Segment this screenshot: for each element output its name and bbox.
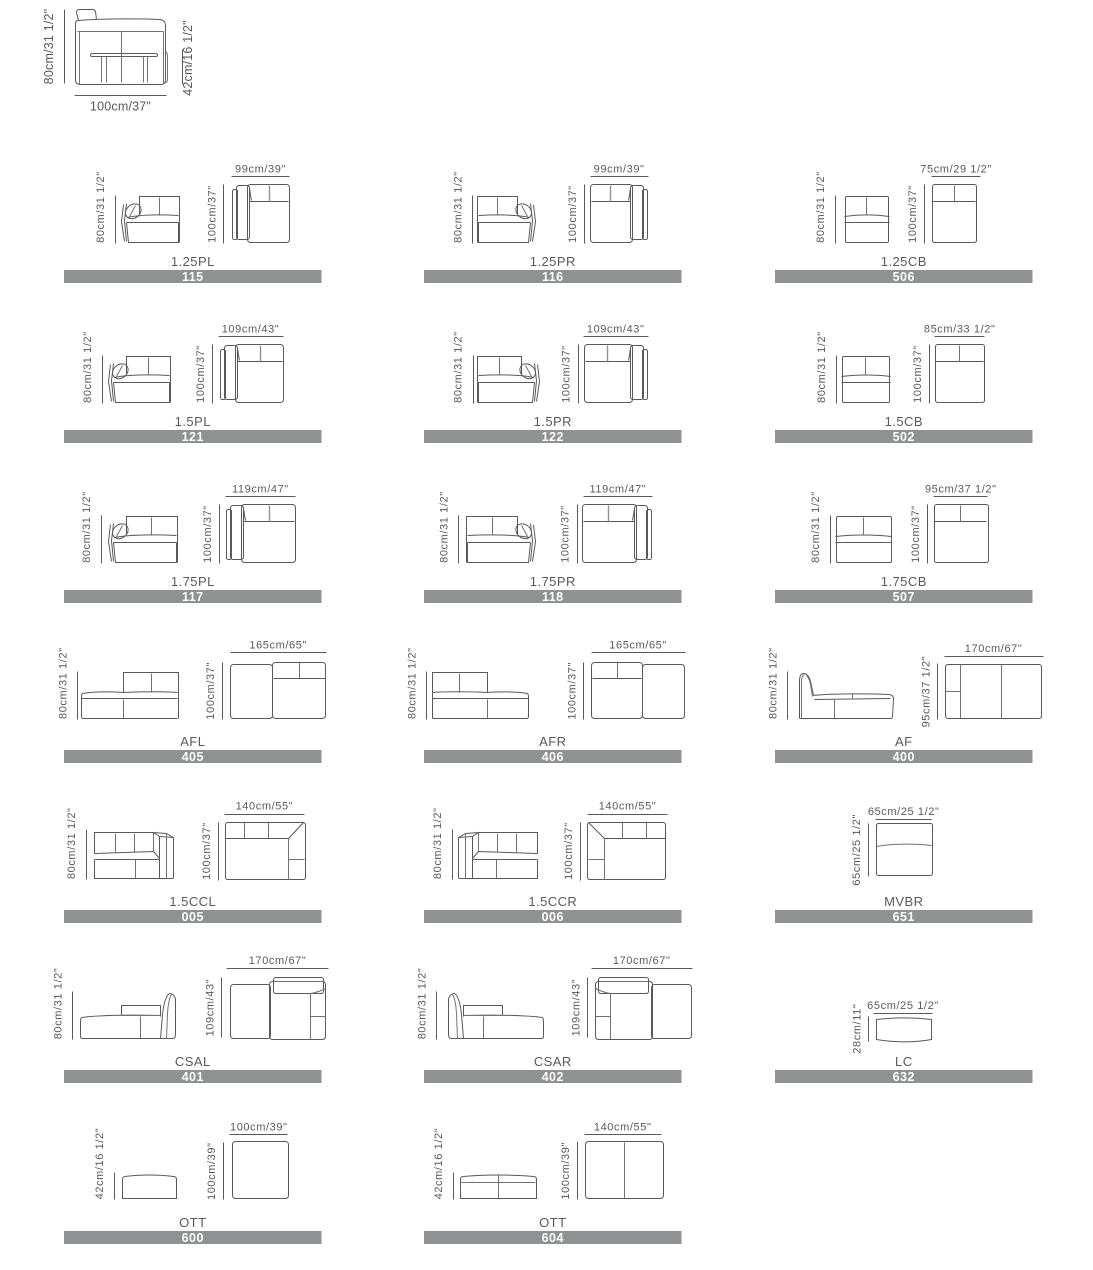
svg-text:80cm/31 1/2": 80cm/31 1/2" <box>95 171 107 243</box>
svg-text:109cm/43": 109cm/43" <box>204 979 216 1037</box>
svg-text:80cm/31 1/2": 80cm/31 1/2" <box>767 647 779 719</box>
svg-text:100cm/37": 100cm/37" <box>567 662 579 720</box>
svg-text:CSAL: CSAL <box>175 1054 211 1069</box>
svg-text:100cm/37": 100cm/37" <box>201 822 213 880</box>
svg-text:80cm/31 1/2": 80cm/31 1/2" <box>42 9 56 85</box>
svg-text:506: 506 <box>893 270 915 284</box>
svg-text:80cm/31 1/2": 80cm/31 1/2" <box>810 491 822 563</box>
svg-text:80cm/31 1/2": 80cm/31 1/2" <box>52 968 64 1040</box>
svg-text:LC: LC <box>895 1054 913 1069</box>
svg-text:100cm/37": 100cm/37" <box>206 185 218 243</box>
svg-text:80cm/31 1/2": 80cm/31 1/2" <box>416 968 428 1040</box>
svg-text:OTT: OTT <box>539 1215 566 1230</box>
svg-text:80cm/31 1/2": 80cm/31 1/2" <box>81 491 93 563</box>
svg-text:406: 406 <box>542 750 564 764</box>
svg-text:1.5PR: 1.5PR <box>534 414 572 429</box>
svg-text:100cm/37": 100cm/37" <box>561 345 573 403</box>
svg-text:80cm/31 1/2": 80cm/31 1/2" <box>815 171 827 243</box>
svg-text:65cm/25 1/2": 65cm/25 1/2" <box>868 806 940 818</box>
svg-text:42cm/16 1/2": 42cm/16 1/2" <box>433 1128 445 1200</box>
svg-text:65cm/25 1/2": 65cm/25 1/2" <box>867 1000 939 1012</box>
svg-text:140cm/55": 140cm/55" <box>236 801 294 813</box>
svg-text:1.5PL: 1.5PL <box>175 414 211 429</box>
svg-text:005: 005 <box>182 910 204 924</box>
svg-text:100cm/39": 100cm/39" <box>230 1122 288 1134</box>
svg-text:100cm/37": 100cm/37" <box>567 185 579 243</box>
svg-text:109cm/43": 109cm/43" <box>222 324 280 336</box>
svg-text:100cm/37": 100cm/37" <box>560 505 572 563</box>
svg-text:CSAR: CSAR <box>534 1054 572 1069</box>
svg-text:600: 600 <box>182 1231 204 1245</box>
svg-text:100cm/39": 100cm/39" <box>206 1142 218 1200</box>
svg-text:80cm/31 1/2": 80cm/31 1/2" <box>439 491 451 563</box>
svg-text:1.75CB: 1.75CB <box>881 574 927 589</box>
svg-text:100cm/37": 100cm/37" <box>205 662 217 720</box>
svg-text:651: 651 <box>893 910 915 924</box>
svg-text:1.25PR: 1.25PR <box>530 254 576 269</box>
svg-text:165cm/65": 165cm/65" <box>609 639 667 651</box>
svg-text:80cm/31 1/2": 80cm/31 1/2" <box>57 647 69 719</box>
svg-text:119cm/47": 119cm/47" <box>590 484 647 496</box>
svg-text:80cm/31 1/2": 80cm/31 1/2" <box>453 331 465 403</box>
svg-text:AF: AF <box>895 734 913 749</box>
svg-text:42cm/16 1/2": 42cm/16 1/2" <box>94 1128 106 1200</box>
svg-text:80cm/31 1/2": 80cm/31 1/2" <box>816 331 828 403</box>
svg-text:502: 502 <box>893 430 915 444</box>
svg-text:140cm/55": 140cm/55" <box>594 1122 652 1134</box>
svg-text:95cm/37 1/2": 95cm/37 1/2" <box>925 484 997 496</box>
svg-text:MVBR: MVBR <box>884 894 923 909</box>
svg-text:122: 122 <box>542 430 564 444</box>
svg-text:1.5CB: 1.5CB <box>885 414 923 429</box>
svg-text:507: 507 <box>893 590 915 604</box>
svg-text:119cm/47": 119cm/47" <box>232 484 289 496</box>
svg-text:1.75PL: 1.75PL <box>171 574 215 589</box>
svg-text:80cm/31 1/2": 80cm/31 1/2" <box>432 807 444 879</box>
svg-text:42cm/16 1/2": 42cm/16 1/2" <box>181 20 195 96</box>
svg-text:170cm/67": 170cm/67" <box>965 643 1023 655</box>
svg-text:109cm/43": 109cm/43" <box>571 979 583 1037</box>
svg-text:117: 117 <box>182 590 204 604</box>
svg-text:604: 604 <box>542 1231 564 1245</box>
svg-text:1.25CB: 1.25CB <box>881 254 927 269</box>
svg-text:1.25PL: 1.25PL <box>171 254 215 269</box>
svg-text:115: 115 <box>182 270 204 284</box>
svg-text:170cm/67": 170cm/67" <box>613 955 671 967</box>
svg-text:100cm/37": 100cm/37" <box>910 505 922 563</box>
svg-text:OTT: OTT <box>179 1215 206 1230</box>
svg-text:140cm/55": 140cm/55" <box>599 801 657 813</box>
svg-text:65cm/25 1/2": 65cm/25 1/2" <box>851 814 863 886</box>
svg-text:80cm/31 1/2": 80cm/31 1/2" <box>406 647 418 719</box>
svg-text:405: 405 <box>182 750 204 764</box>
svg-text:402: 402 <box>542 1070 564 1084</box>
svg-text:1.5CCL: 1.5CCL <box>169 894 216 909</box>
svg-text:95cm/37 1/2": 95cm/37 1/2" <box>920 656 932 728</box>
svg-text:400: 400 <box>893 750 915 764</box>
svg-text:116: 116 <box>542 270 564 284</box>
svg-text:109cm/43": 109cm/43" <box>587 324 645 336</box>
svg-text:401: 401 <box>182 1070 204 1084</box>
svg-text:121: 121 <box>182 430 204 444</box>
svg-text:80cm/31 1/2": 80cm/31 1/2" <box>82 331 94 403</box>
svg-text:100cm/39": 100cm/39" <box>560 1142 572 1200</box>
svg-text:118: 118 <box>542 590 564 604</box>
svg-text:AFL: AFL <box>180 734 205 749</box>
svg-text:100cm/37": 100cm/37" <box>202 505 214 563</box>
svg-text:75cm/29 1/2": 75cm/29 1/2" <box>920 164 992 176</box>
svg-text:100cm/37": 100cm/37" <box>195 345 207 403</box>
svg-text:165cm/65": 165cm/65" <box>249 639 307 651</box>
svg-text:85cm/33 1/2": 85cm/33 1/2" <box>924 324 996 336</box>
svg-text:100cm/37": 100cm/37" <box>563 822 575 880</box>
svg-text:28cm/11": 28cm/11" <box>851 1004 863 1054</box>
svg-text:100cm/37": 100cm/37" <box>907 185 919 243</box>
svg-text:1.75PR: 1.75PR <box>530 574 576 589</box>
svg-text:100cm/37": 100cm/37" <box>90 100 151 114</box>
svg-text:80cm/31 1/2": 80cm/31 1/2" <box>452 171 464 243</box>
svg-text:AFR: AFR <box>539 734 566 749</box>
svg-text:99cm/39": 99cm/39" <box>594 164 645 176</box>
svg-text:006: 006 <box>542 910 564 924</box>
svg-text:632: 632 <box>893 1070 915 1084</box>
svg-text:170cm/67": 170cm/67" <box>249 955 307 967</box>
svg-text:1.5CCR: 1.5CCR <box>528 894 577 909</box>
svg-text:100cm/37": 100cm/37" <box>912 345 924 403</box>
svg-text:99cm/39": 99cm/39" <box>235 164 286 176</box>
svg-text:80cm/31 1/2": 80cm/31 1/2" <box>66 807 78 879</box>
